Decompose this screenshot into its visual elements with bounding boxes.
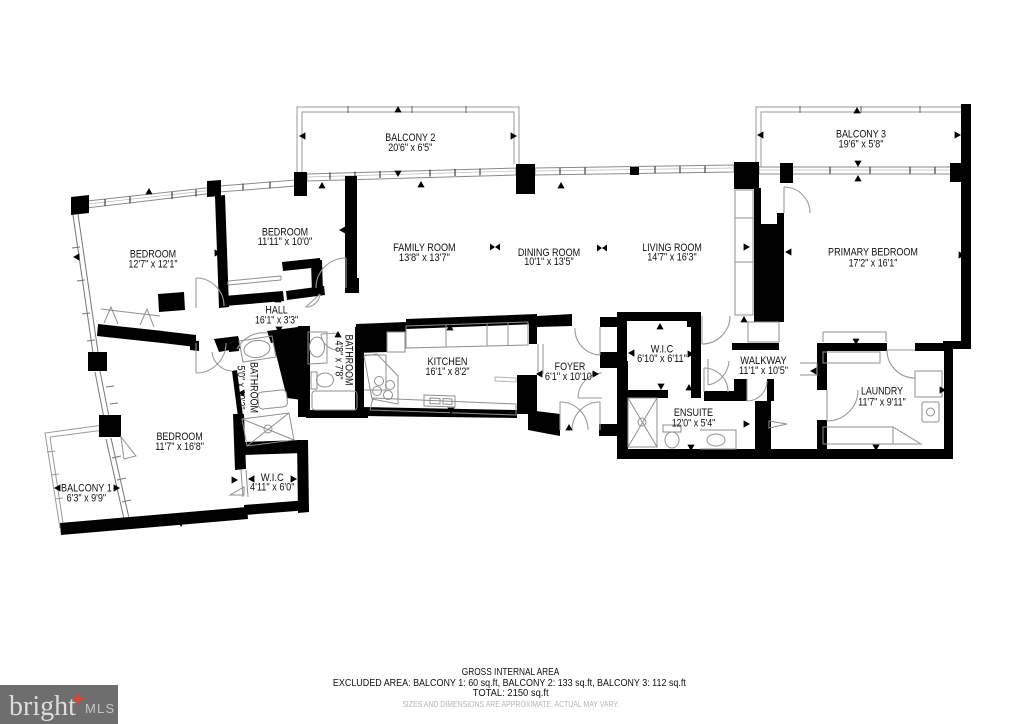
svg-text:bright: bright	[9, 691, 76, 722]
svg-text:16'1" x 8'2": 16'1" x 8'2"	[426, 366, 470, 378]
svg-text:11'1" x 10'5": 11'1" x 10'5"	[739, 365, 788, 377]
svg-text:6'10" x 6'11": 6'10" x 6'11"	[637, 353, 687, 365]
svg-text:10'1" x 13'5": 10'1" x 13'5"	[524, 256, 574, 268]
svg-text:6'1" x 10'10": 6'1" x 10'10"	[545, 371, 595, 383]
svg-text:4'11" x 6'0": 4'11" x 6'0"	[250, 482, 295, 494]
svg-text:5'0" x 10'2": 5'0" x 10'2"	[235, 366, 247, 410]
svg-text:SIZES AND DIMENSIONS ARE APPRO: SIZES AND DIMENSIONS ARE APPROXIMATE, AC…	[402, 700, 619, 709]
svg-text:MLS: MLS	[85, 701, 115, 716]
svg-text:14'7" x 16'3": 14'7" x 16'3"	[647, 251, 697, 263]
svg-text:13'8" x 13'7": 13'8" x 13'7"	[399, 252, 450, 264]
svg-text:19'6" x 5'8": 19'6" x 5'8"	[839, 139, 884, 151]
svg-text:TOTAL: 2150 sq.ft: TOTAL: 2150 sq.ft	[473, 688, 549, 699]
svg-text:GROSS INTERNAL AREA: GROSS INTERNAL AREA	[462, 667, 560, 678]
svg-text:11'7" x 9'11": 11'7" x 9'11"	[858, 396, 906, 408]
svg-text:11'7" x 16'8": 11'7" x 16'8"	[155, 441, 204, 453]
svg-text:16'1" x 3'3": 16'1" x 3'3"	[255, 315, 298, 327]
svg-text:17'2" x 16'1": 17'2" x 16'1"	[849, 257, 898, 269]
svg-text:6'3" x 9'9": 6'3" x 9'9"	[67, 493, 107, 505]
svg-text:11'11" x 10'0": 11'11" x 10'0"	[258, 236, 313, 248]
svg-text:4'8" x 7'8": 4'8" x 7'8"	[333, 340, 345, 379]
svg-text:12'0" x 5'4": 12'0" x 5'4"	[672, 417, 716, 429]
svg-text:EXCLUDED AREA: BALCONY 1: 60 s: EXCLUDED AREA: BALCONY 1: 60 sq.ft, BALC…	[333, 678, 686, 689]
svg-text:BATHROOM: BATHROOM	[247, 362, 259, 413]
svg-text:20'6" x 6'5": 20'6" x 6'5"	[388, 142, 432, 154]
svg-text:12'7" x 12'1": 12'7" x 12'1"	[128, 258, 177, 270]
